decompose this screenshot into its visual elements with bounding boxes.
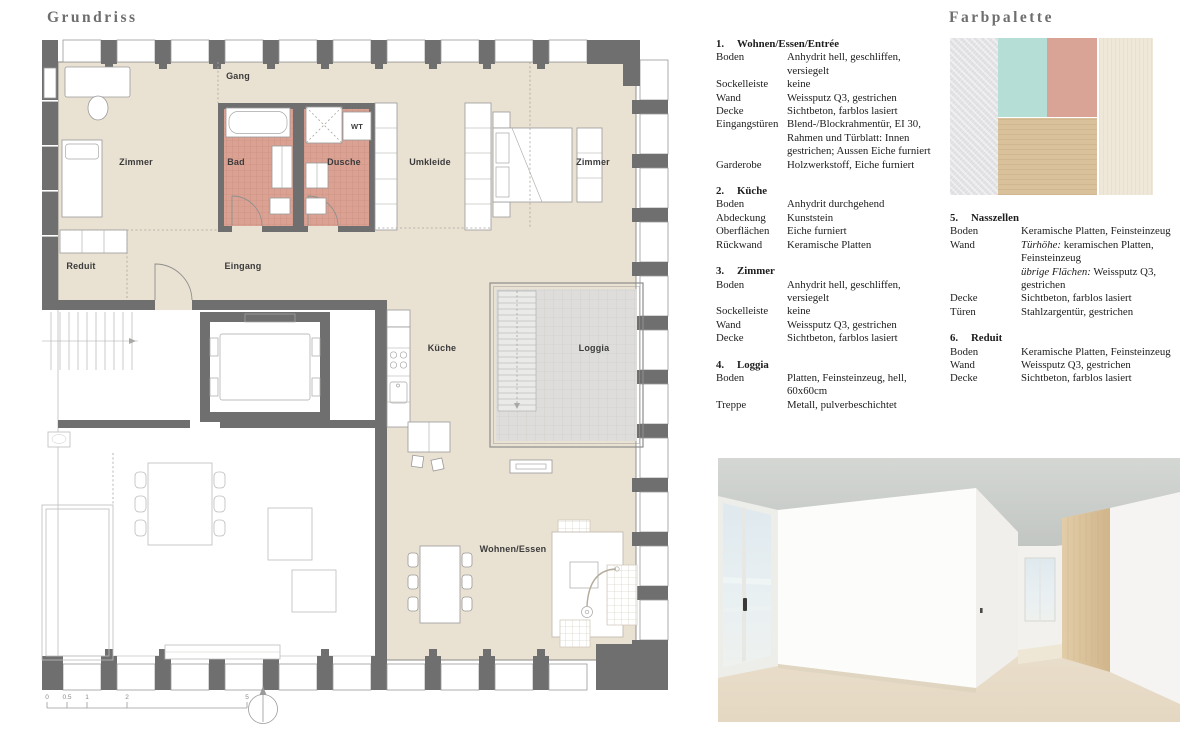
scale-tick-label: 2: [125, 694, 129, 701]
spec-section-title: 6.Reduit: [950, 332, 1178, 345]
spec-row: WandTürhöhe: keramischen Platten, Feinst…: [950, 239, 1178, 293]
spec-label: Boden: [716, 51, 787, 78]
north-arrow: [249, 686, 278, 724]
dining-table: [420, 546, 460, 623]
spec-label: Decke: [716, 332, 787, 345]
shower: [306, 107, 342, 143]
room-label-gang: Gang: [226, 71, 250, 81]
room-label-umkleide: Umkleide: [409, 157, 451, 167]
interior-rendering: [718, 458, 1180, 722]
spec-value: Anhydrit durchgehend: [787, 198, 938, 211]
floor-plan: GangZimmerBadDuscheWTUmkleideZimmerRedui…: [40, 38, 672, 728]
spec-value: Sichtbeton, farblos lasiert: [787, 332, 938, 345]
spec-row: WandWeissputz Q3, gestrichen: [716, 92, 938, 105]
spec-label: Treppe: [716, 399, 787, 412]
plan-title: Grundriss: [47, 9, 138, 27]
scale-tick-label: 0.5: [62, 694, 71, 701]
spec-label: Wand: [716, 319, 787, 332]
room-label-bad: Bad: [227, 157, 245, 167]
spec-label: Abdeckung: [716, 212, 787, 225]
spec-row: Sockelleistekeine: [716, 305, 938, 318]
render-left-window: [723, 503, 771, 668]
render-white-box: [778, 488, 976, 688]
loggia: [490, 283, 643, 447]
spec-row: BodenKeramische Platten, Feinsteinzeug: [950, 225, 1178, 238]
spec-value: Blend-/Blockrahmentür, EI 30, Rahmen und…: [787, 118, 938, 158]
spec-row: BodenAnhydrit hell, geschliffen, versieg…: [716, 279, 938, 306]
scale-tick-label: 1: [85, 694, 89, 701]
spec-label: Sockelleiste: [716, 305, 787, 318]
spec-section-6: 6.ReduitBodenKeramische Platten, Feinste…: [950, 332, 1178, 386]
room-label-reduit: Reduit: [66, 261, 95, 271]
room-label-zimmer-ost: Zimmer: [576, 157, 610, 167]
spec-value: Stahlzargentür, gestrichen: [1021, 306, 1178, 319]
window-band-right: [632, 60, 668, 640]
spec-value: Kunststein: [787, 212, 938, 225]
room-label-kueche: Küche: [428, 343, 457, 353]
scale-bar: 00.5125: [45, 686, 277, 724]
spec-row: Sockelleistekeine: [716, 78, 938, 91]
spec-section-title: 4.Loggia: [716, 359, 938, 372]
spec-label: Oberflächen: [716, 225, 787, 238]
spec-row: GarderobeHolzwerkstoff, Eiche furniert: [716, 159, 938, 172]
spec-row: DeckeSichtbeton, farblos lasiert: [950, 292, 1178, 305]
spec-row: BodenAnhydrit hell, geschliffen, versieg…: [716, 51, 938, 78]
neighbour-unit: [42, 432, 336, 660]
spec-row: AbdeckungKunststein: [716, 212, 938, 225]
spec-label: Garderobe: [716, 159, 787, 172]
spec-row: BodenAnhydrit durchgehend: [716, 198, 938, 211]
spec-section-2: 2.KücheBodenAnhydrit durchgehendAbdeckun…: [716, 185, 938, 252]
room-label-loggia: Loggia: [579, 343, 610, 353]
room-label-zimmer-west: Zimmer: [119, 157, 153, 167]
render-right-wall: [1110, 492, 1180, 704]
render-wood-wardrobe: [1062, 508, 1110, 672]
swatch-mint-green: [998, 38, 1047, 117]
spec-value: Metall, pulverbeschichtet: [787, 399, 938, 412]
spec-row: TürenStahlzargentür, gestrichen: [950, 306, 1178, 319]
wc: [306, 198, 326, 214]
spec-row: WandWeissputz Q3, gestrichen: [716, 319, 938, 332]
swatch-oak-wood: [998, 118, 1097, 195]
spec-value: Keramische Platten, Feinsteinzeug: [1021, 225, 1178, 238]
swatch-salmon-red: [1047, 38, 1097, 117]
swatch-cream-stone: [1099, 38, 1153, 195]
spec-row: DeckeSichtbeton, farblos lasiert: [716, 105, 938, 118]
spec-column-1: 1.Wohnen/Essen/EntréeBodenAnhydrit hell,…: [716, 38, 938, 425]
neighbour-table: [148, 463, 212, 545]
spec-row: DeckeSichtbeton, farblos lasiert: [950, 372, 1178, 385]
spec-label: Boden: [716, 279, 787, 306]
spec-column-2: 5.NasszellenBodenKeramische Platten, Fei…: [950, 212, 1178, 399]
room-label-wohnen-essen: Wohnen/Essen: [480, 544, 547, 554]
spec-value: Sichtbeton, farblos lasiert: [1021, 372, 1178, 385]
swatch-concrete-gray: [950, 38, 998, 195]
spec-value: Eiche furniert: [787, 225, 938, 238]
spec-value: Sichtbeton, farblos lasiert: [1021, 292, 1178, 305]
spec-row: TreppeMetall, pulverbeschichtet: [716, 399, 938, 412]
spec-label: Boden: [716, 198, 787, 211]
spec-label: Sockelleiste: [716, 78, 787, 91]
spec-section-5: 5.NasszellenBodenKeramische Platten, Fei…: [950, 212, 1178, 319]
elevator: [200, 312, 330, 422]
color-palette: [950, 38, 1153, 195]
spec-row: WandWeissputz Q3, gestrichen: [950, 359, 1178, 372]
spec-label: Wand: [950, 239, 1021, 293]
spec-value: Weissputz Q3, gestrichen: [787, 319, 938, 332]
spec-section-title: 2.Küche: [716, 185, 938, 198]
spec-row: OberflächenEiche furniert: [716, 225, 938, 238]
spec-label: Boden: [950, 225, 1021, 238]
palette-title: Farbpalette: [949, 9, 1054, 27]
spec-value: Keramische Platten, Feinsteinzeug: [1021, 346, 1178, 359]
spec-value: Türhöhe: keramischen Platten, Feinsteinz…: [1021, 239, 1178, 293]
reduit-shelves: [60, 230, 127, 253]
spec-value: Platten, Feinsteinzeug, hell, 60x60cm: [787, 372, 938, 399]
scale-tick-label: 0: [45, 694, 49, 701]
spec-label: Boden: [950, 346, 1021, 359]
spec-value: Anhydrit hell, geschliffen, versiegelt: [787, 51, 938, 78]
room-label-eingang: Eingang: [225, 261, 262, 271]
door-handle: [980, 608, 983, 613]
spec-value: Weissputz Q3, gestrichen: [1021, 359, 1178, 372]
spec-label: Decke: [716, 105, 787, 118]
spec-value: keine: [787, 305, 938, 318]
spec-value: Weissputz Q3, gestrichen: [787, 92, 938, 105]
spec-section-4: 4.LoggiaBodenPlatten, Feinsteinzeug, hel…: [716, 359, 938, 413]
spec-value: Anhydrit hell, geschliffen, versiegelt: [787, 279, 938, 306]
wc: [270, 198, 290, 214]
spec-section-1: 1.Wohnen/Essen/EntréeBodenAnhydrit hell,…: [716, 38, 938, 172]
architecture-sheet: Grundriss Farbpalette: [0, 0, 1200, 750]
room-label-dusche: Dusche: [327, 157, 361, 167]
spec-row: BodenKeramische Platten, Feinsteinzeug: [950, 346, 1178, 359]
bathtub: [226, 108, 290, 137]
spec-section-title: 3.Zimmer: [716, 265, 938, 278]
spec-section-title: 5.Nasszellen: [950, 212, 1178, 225]
spec-label: Wand: [950, 359, 1021, 372]
spec-row: EingangstürenBlend-/Blockrahmentür, EI 3…: [716, 118, 938, 158]
spec-value: Keramische Platten: [787, 239, 938, 252]
spec-row: DeckeSichtbeton, farblos lasiert: [716, 332, 938, 345]
window-handle: [743, 598, 747, 611]
staircase: [42, 312, 138, 370]
spec-label: Wand: [716, 92, 787, 105]
spec-value: Holzwerkstoff, Eiche furniert: [787, 159, 938, 172]
scale-tick-label: 5: [245, 694, 249, 701]
spec-value: Sichtbeton, farblos lasiert: [787, 105, 938, 118]
spec-label: Boden: [716, 372, 787, 399]
spec-label: Decke: [950, 372, 1021, 385]
spec-section-title: 1.Wohnen/Essen/Entrée: [716, 38, 938, 51]
spec-label: Rückwand: [716, 239, 787, 252]
spec-row: RückwandKeramische Platten: [716, 239, 938, 252]
spec-row: BodenPlatten, Feinsteinzeug, hell, 60x60…: [716, 372, 938, 399]
spec-label: Eingangstüren: [716, 118, 787, 158]
spec-section-3: 3.ZimmerBodenAnhydrit hell, geschliffen,…: [716, 265, 938, 345]
room-label-wt: WT: [351, 122, 363, 131]
spec-label: Decke: [950, 292, 1021, 305]
spec-value: keine: [787, 78, 938, 91]
spec-label: Türen: [950, 306, 1021, 319]
